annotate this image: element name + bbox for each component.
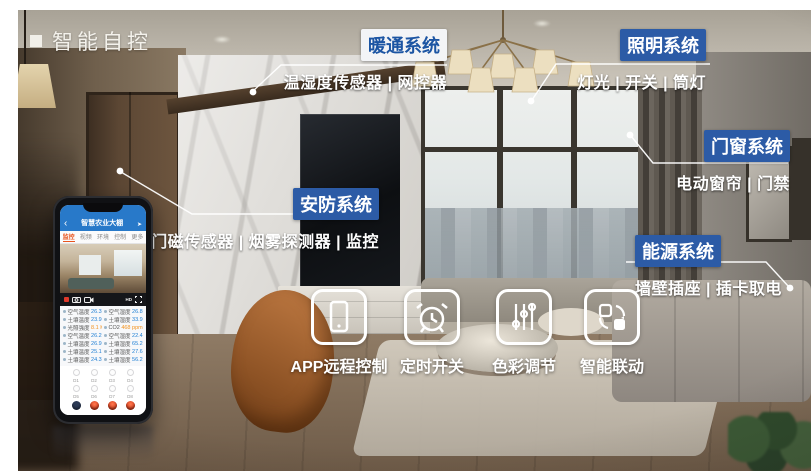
switch-label: D8 [125,394,135,399]
camera-feed-window [114,250,142,276]
sync-icon [584,289,640,345]
switch-indicator[interactable] [73,369,80,376]
tab-more[interactable]: 更多 [131,232,143,241]
page-title-text: 智能自控 [52,26,152,56]
switch-label: D2 [89,378,99,383]
callout-door-window: 门窗系统 电动窗帘 | 门禁 [676,130,790,194]
tab-video[interactable]: 视频 [80,232,92,241]
sensor-row: 光照强度8.1 Klux CO2468 ppm [63,324,143,332]
share-icon[interactable]: ➤ [137,221,142,228]
lighting-badge: 照明系统 [620,29,706,61]
sensor-row: 空气温度26.25 ℃ 空气湿度22.45 % [63,332,143,340]
title-bullet-icon [30,35,42,47]
sensor-list: 空气温度26.39 ℃ 空气湿度26.85 % 土壤温度23.98 ℃ 土壤湿度… [60,306,146,366]
app-title: 智慧农业大棚 [67,218,137,228]
switch-label: D3 [107,378,117,383]
feature-label: 定时开关 [400,353,464,377]
switch-d8-button[interactable] [126,401,135,410]
snapshot-icon[interactable] [72,296,81,303]
app-tab-bar: 监控 视频 环境 控制 更多 [60,231,146,245]
fullscreen-icon[interactable] [135,296,142,303]
callout-security: 安防系统 门磁传感器 | 烟雾探测器 | 监控 [151,188,379,252]
camera-feed-sofa [68,278,114,289]
switch-label: D1 [71,378,81,383]
pendant-cord [24,10,26,68]
switch-d7-button[interactable] [108,401,117,410]
phone-screen: ‹ 智慧农业大棚 ➤ 监控 视频 环境 控制 更多 [60,205,146,415]
switch-panel: D1 D2 D3 D4 D5 D6 D7 [60,366,146,415]
lighting-items: 灯光 | 开关 | 筒灯 [577,69,706,93]
feature-label: 智能联动 [580,353,644,377]
smart-home-poster: 智能自控 暖通系统 温湿度传感器 | 网控器 照明系统 灯光 | 开关 | 筒灯… [0,0,811,471]
sliders-icon [496,289,552,345]
sensor-row: 土壤温度25.17 ℃ 土壤湿度27.67 % [63,348,143,356]
switch-indicator[interactable] [91,385,98,392]
hvac-items: 温湿度传感器 | 网控器 [284,69,447,93]
phone-reflection [53,426,153,468]
tab-monitor[interactable]: 监控 [63,232,75,242]
callout-hvac: 暖通系统 温湿度传感器 | 网控器 [284,29,447,93]
door-window-items: 电动窗帘 | 门禁 [676,170,790,194]
smartphone-mockup: ‹ 智慧农业大棚 ➤ 监控 视频 环境 控制 更多 [53,196,153,424]
switch-indicator[interactable] [73,385,80,392]
security-badge: 安防系统 [293,188,379,220]
hd-label[interactable]: HD [126,297,133,302]
switch-indicator[interactable] [109,385,116,392]
plant [728,412,811,471]
phone-notch [83,203,123,212]
tab-environment[interactable]: 环境 [97,232,109,241]
switch-d6-button[interactable] [90,401,99,410]
energy-badge: 能源系统 [635,235,721,267]
hvac-badge: 暖通系统 [361,29,447,61]
feature-label: 色彩调节 [492,353,556,377]
switch-indicator[interactable] [91,369,98,376]
switch-label: D4 [125,378,135,383]
switch-label: D5 [71,394,81,399]
switch-d5-button[interactable] [72,401,81,410]
smartphone-icon [311,289,367,345]
switch-indicator[interactable] [127,369,134,376]
security-items: 门磁传感器 | 烟雾探测器 | 监控 [151,228,379,252]
page-title: 智能自控 [30,26,152,56]
record-button[interactable] [64,297,69,302]
camera-feed[interactable] [60,244,146,293]
sensor-row: 土壤温度23.98 ℃ 土壤湿度33.97 % [63,316,143,324]
callout-lighting: 照明系统 灯光 | 开关 | 筒灯 [577,29,706,93]
door-window-badge: 门窗系统 [704,130,790,162]
alarm-clock-icon [404,289,460,345]
switch-indicator[interactable] [127,385,134,392]
video-icon[interactable] [84,297,94,303]
camera-controls: HD [60,293,146,306]
picture-frame [792,138,811,240]
sensor-row: 空气温度26.39 ℃ 空气湿度26.85 % [63,308,143,316]
living-room-photo: 智能自控 暖通系统 温湿度传感器 | 网控器 照明系统 灯光 | 开关 | 筒灯… [18,10,811,471]
sensor-row: 土壤温度24.39 ℃ 土壤湿度56.26 % [63,356,143,364]
spotlight-glow [213,36,231,43]
sensor-row: 土壤温度26.98 ℃ 土壤湿度65.29 % [63,340,143,348]
tab-control[interactable]: 控制 [114,232,126,241]
switch-indicator[interactable] [109,369,116,376]
switch-label: D7 [107,394,117,399]
window-mullion [425,147,649,152]
feature-smart-linkage: 智能联动 [552,289,672,377]
switch-label: D6 [89,394,99,399]
